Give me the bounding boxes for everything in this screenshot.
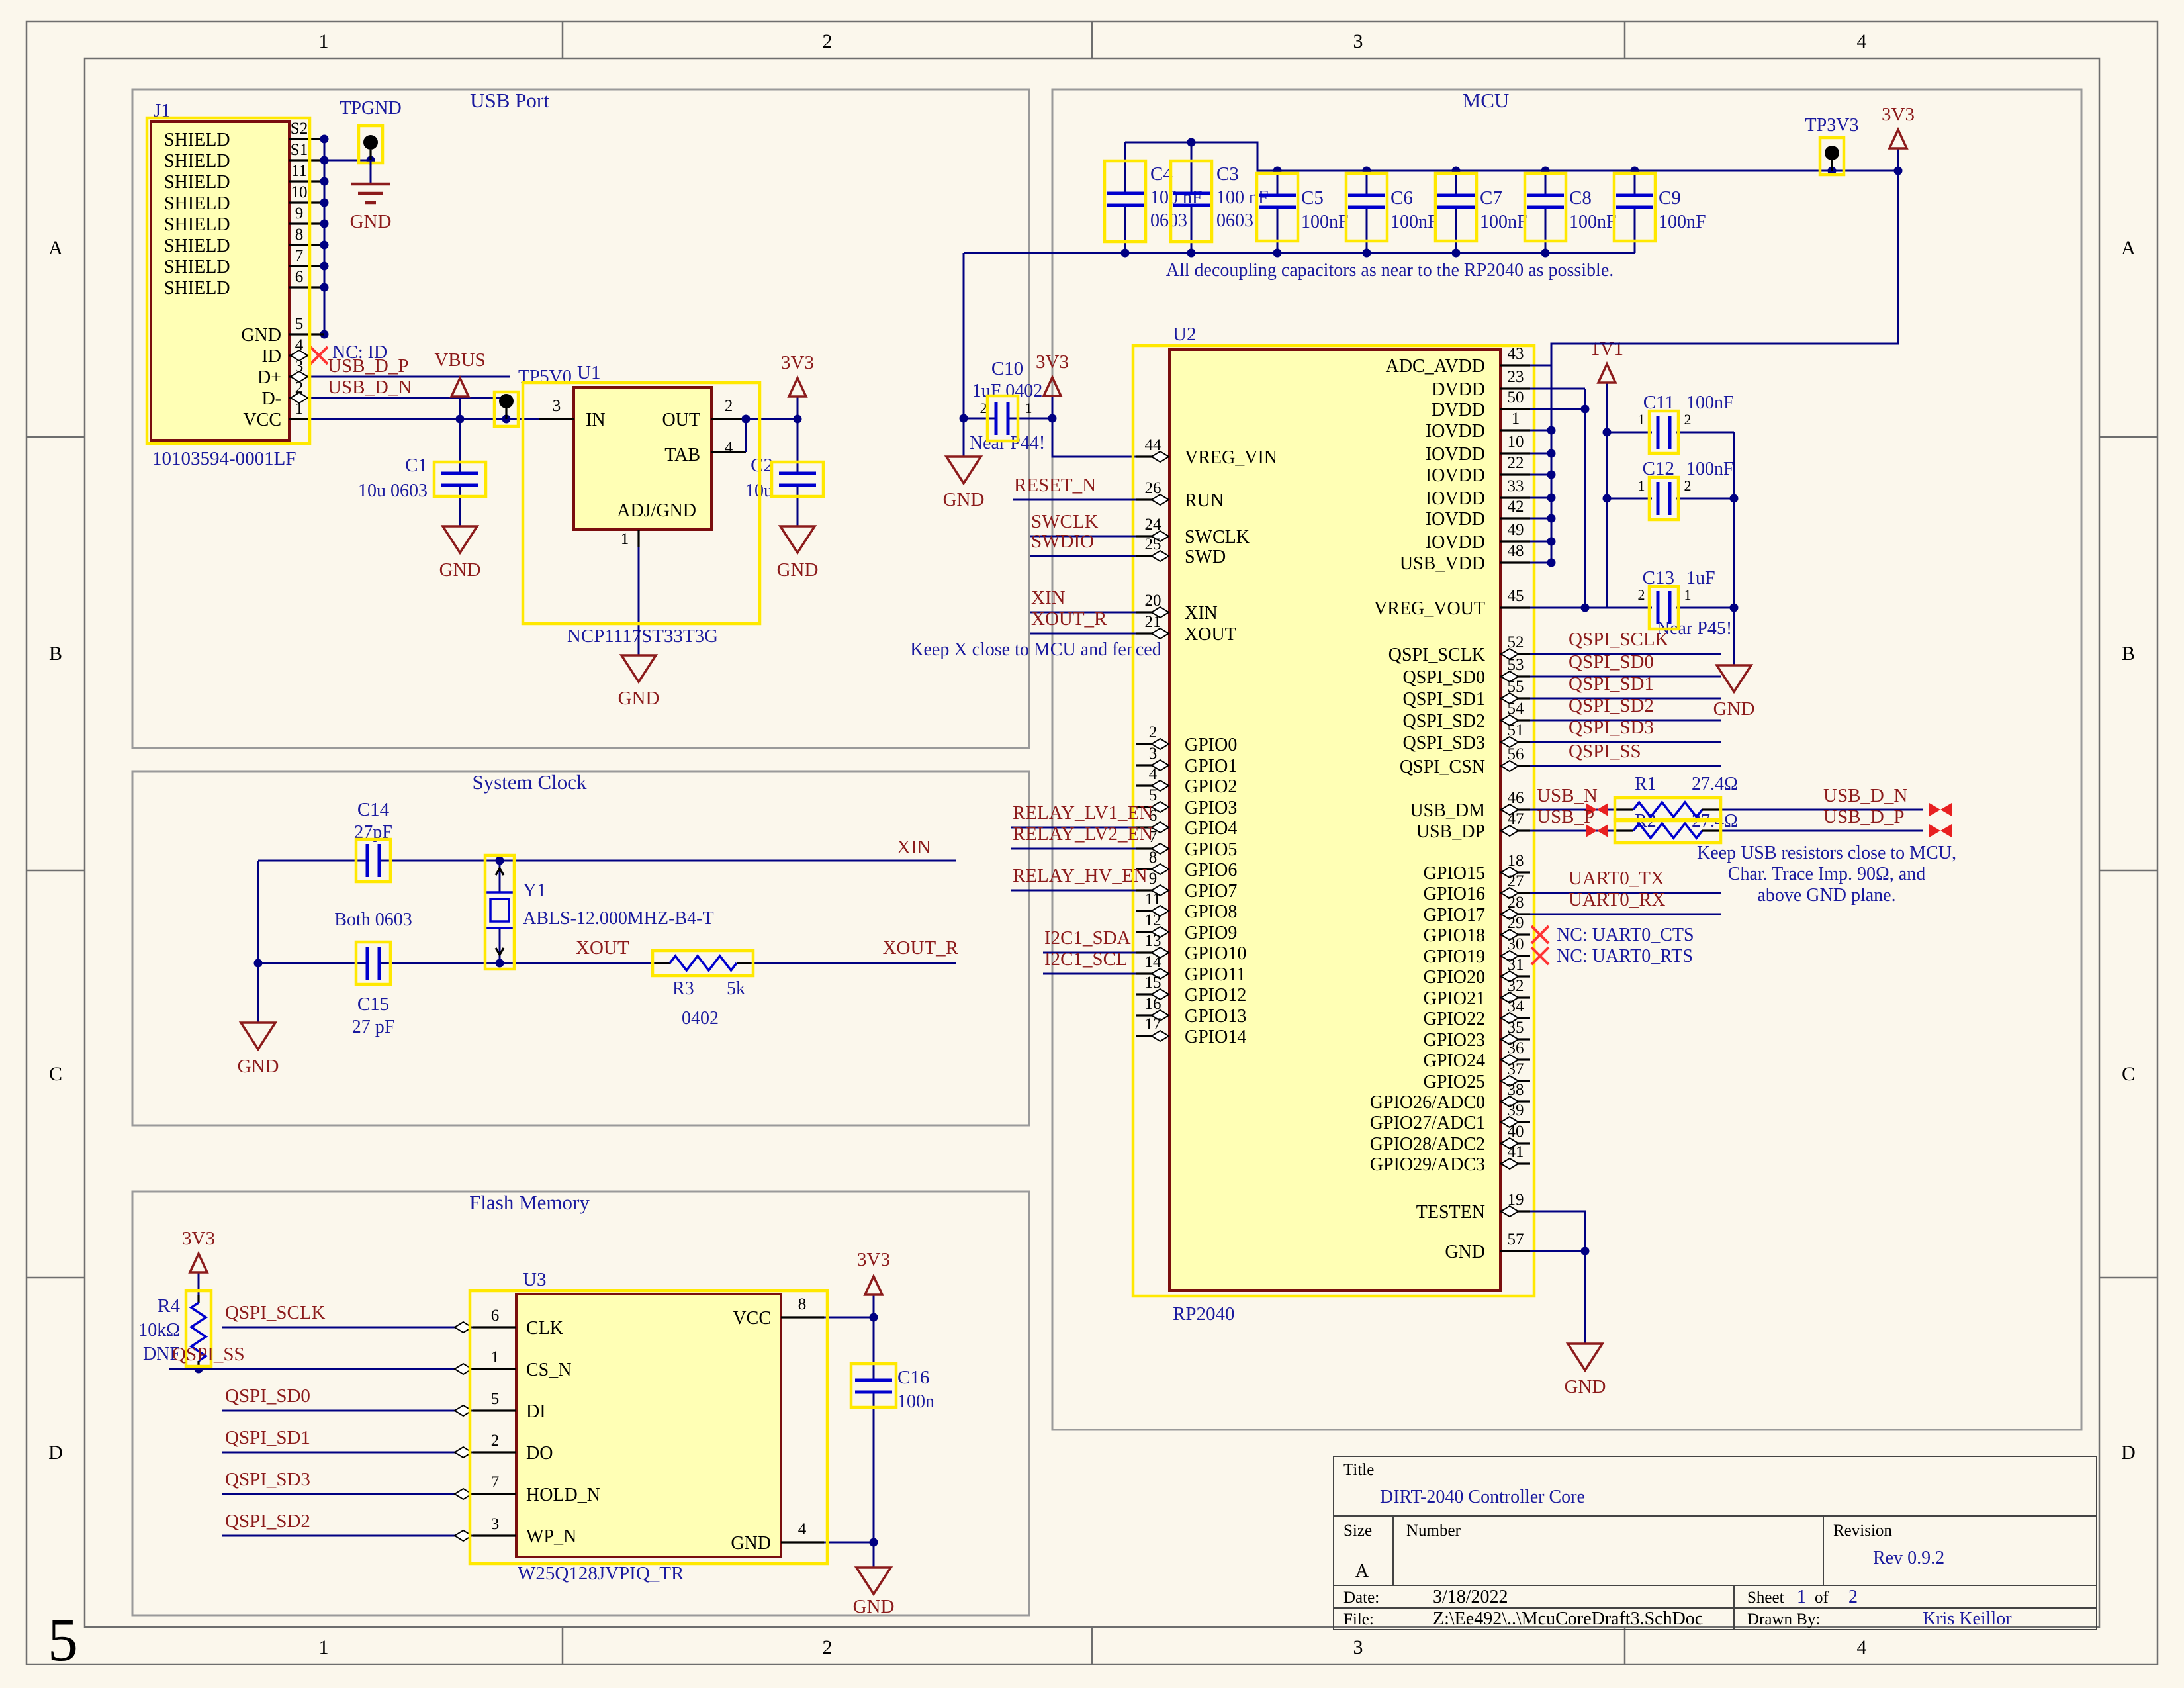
u3-net-label: QSPI_SD2 xyxy=(225,1511,310,1532)
net-label-usb-d-p: USB_D_P xyxy=(328,355,409,377)
u2-pin-name: GPIO6 xyxy=(1185,860,1237,880)
decap-value: 100nF xyxy=(1569,212,1617,232)
j1-pin-name: GND xyxy=(241,325,281,346)
decoupling-note: All decoupling capacitors as near to the… xyxy=(1166,260,1614,281)
u2-pin-name: GPIO28/ADC2 xyxy=(1370,1134,1485,1154)
u2-pin-name: GPIO22 xyxy=(1424,1009,1485,1029)
c12-value: 100nF xyxy=(1686,459,1734,479)
u2-pin-name: GPIO4 xyxy=(1185,818,1237,839)
number-label: Number xyxy=(1406,1522,1461,1540)
u2-pin-name: TESTEN xyxy=(1416,1202,1485,1223)
usb-note-line-3: above GND plane. xyxy=(1757,885,1895,906)
c1-gnd-label: GND xyxy=(439,559,481,581)
file-label: File: xyxy=(1343,1611,1374,1628)
nc-label: NC: UART0_RTS xyxy=(1557,946,1693,966)
u2-pin-name: QSPI_SD1 xyxy=(1403,689,1485,710)
u2-net-label: QSPI_SCLK xyxy=(1569,629,1669,650)
tpgnd-test-point[interactable] xyxy=(363,135,378,150)
u2-pin-name: QSPI_SCLK xyxy=(1388,645,1485,665)
u2-pin-name: GPIO21 xyxy=(1424,988,1485,1009)
c10-near-p44-note: Near P44! xyxy=(970,433,1045,453)
j1-pin-number: 11 xyxy=(291,162,307,180)
c15-value: 27 pF xyxy=(352,1017,395,1037)
u2-net-label: QSPI_SD1 xyxy=(1569,673,1654,694)
mcu-gnd-label: GND xyxy=(1565,1376,1606,1397)
c11-pin2: 2 xyxy=(1684,411,1692,428)
u2-pin-name: XOUT xyxy=(1185,624,1236,645)
u1-pin-name-tab: TAB xyxy=(664,445,700,465)
u1-pin-number-1: 1 xyxy=(621,530,629,548)
zone-column-label: 3 xyxy=(1353,1636,1363,1658)
u2-net-label: RELAY_LV1_EN xyxy=(1013,802,1153,823)
u3-pin-number: 6 xyxy=(491,1307,500,1325)
u2-pin-name: VREG_VOUT xyxy=(1374,598,1485,619)
section-title-mcu: MCU xyxy=(1463,89,1510,112)
u3-pin-number: 2 xyxy=(491,1432,500,1450)
j1-part-number: 10103594-0001LF xyxy=(152,448,296,469)
u2-net-label: I2C1_SDA xyxy=(1044,927,1131,949)
u3-pin-name: WP_N xyxy=(526,1526,576,1547)
u1-pin-name-out: OUT xyxy=(662,410,700,430)
decap-refdes: C8 xyxy=(1569,187,1592,209)
u2-pin-name: GPIO12 xyxy=(1185,985,1246,1006)
j1-pin-number: S2 xyxy=(291,120,308,138)
r4-refdes: R4 xyxy=(158,1295,180,1317)
u2-pin-number: 45 xyxy=(1508,587,1524,605)
c15-refdes: C15 xyxy=(357,994,389,1015)
u2-net-label: USB_D_N xyxy=(1823,785,1907,806)
u2-pin-name: IOVDD xyxy=(1426,444,1485,465)
c10-value: 1uF 0402 xyxy=(972,381,1043,401)
c13-value: 1uF xyxy=(1686,568,1715,588)
u2-pin-name: GPIO19 xyxy=(1424,947,1485,967)
u3-pin-number: 7 xyxy=(491,1474,500,1491)
u2-pin-name: XIN xyxy=(1185,603,1218,624)
u2-pin-number: 33 xyxy=(1508,477,1524,495)
u2-net-label: QSPI_SD0 xyxy=(1569,651,1654,673)
sheet-of-label: of xyxy=(1815,1589,1829,1607)
j1-pin-number: 10 xyxy=(291,183,308,201)
decap-refdes: C7 xyxy=(1480,187,1502,209)
j1-pin-number: S1 xyxy=(291,141,308,159)
u2-pin-number: 2 xyxy=(1149,724,1158,741)
zone-row-label: D xyxy=(48,1442,63,1464)
u2-pin-number: 3 xyxy=(1149,745,1158,763)
u2-pin-name: GPIO15 xyxy=(1424,863,1485,884)
u2-part-number: RP2040 xyxy=(1173,1303,1234,1325)
nc-label: NC: UART0_CTS xyxy=(1557,925,1694,945)
u2-refdes: U2 xyxy=(1173,324,1196,345)
r4-3v3-power-label: 3V3 xyxy=(182,1228,215,1249)
u2-pin-name: GPIO13 xyxy=(1185,1006,1246,1027)
usb-3v3-power-label: 3V3 xyxy=(781,352,814,373)
section-title-usb-port: USB Port xyxy=(470,89,549,112)
u1-refdes: U1 xyxy=(577,362,600,383)
tp3v3-test-point[interactable] xyxy=(1825,146,1839,160)
junction-dot xyxy=(496,857,504,865)
zone-row-label: A xyxy=(2121,237,2136,259)
y1-refdes: Y1 xyxy=(523,880,546,901)
u2-pin-name: GPIO27/ADC1 xyxy=(1370,1113,1485,1133)
decap-refdes: C9 xyxy=(1659,187,1681,209)
u2-pin-name: ADC_AVDD xyxy=(1386,356,1485,377)
usb-note-line-2: Char. Trace Imp. 90Ω, and xyxy=(1728,864,1925,884)
tpgnd-label: TPGND xyxy=(340,98,401,118)
r1-value: 27.4Ω xyxy=(1692,774,1738,794)
flash-gnd-label: GND xyxy=(853,1596,895,1617)
size-value: A xyxy=(1355,1561,1369,1581)
u2-pin-name: IOVDD xyxy=(1426,421,1485,442)
u2-pin-name: QSPI_SD3 xyxy=(1403,733,1485,753)
u2-pin-name: VREG_VIN xyxy=(1185,447,1277,468)
u1-pin-name-in: IN xyxy=(586,410,606,430)
file-value: Z:\Ee492\..\McuCoreDraft3.SchDoc xyxy=(1433,1609,1703,1629)
c2-refdes: C2 xyxy=(751,455,773,476)
u3-pin-name: HOLD_N xyxy=(526,1485,600,1505)
junction-dot xyxy=(1603,428,1612,437)
r1-refdes: R1 xyxy=(1635,774,1657,794)
zone-row-label: B xyxy=(2122,643,2135,665)
u2-pin-name: GPIO16 xyxy=(1424,884,1485,904)
c11-value: 100nF xyxy=(1686,393,1734,413)
u2-pin-name: GPIO24 xyxy=(1424,1051,1485,1071)
j1-pin-name: VCC xyxy=(243,410,281,430)
u2-pin-number: 50 xyxy=(1508,389,1524,406)
u2-pin-name: GPIO20 xyxy=(1424,967,1485,988)
u2-pin-name: GPIO5 xyxy=(1185,839,1237,860)
clock-gnd-label: GND xyxy=(238,1056,279,1077)
zone-column-label: 2 xyxy=(823,30,833,52)
u2-pin-number: 1 xyxy=(1512,410,1520,428)
page-number: 5 xyxy=(48,1606,78,1673)
zone-column-label: 1 xyxy=(319,30,329,52)
j1-pin-name-shield: SHIELD xyxy=(164,130,230,150)
decap-value: 100nF xyxy=(1659,212,1706,232)
net-label-usb-d-n: USB_D_N xyxy=(328,377,412,398)
section-title-flash-memory: Flash Memory xyxy=(469,1191,590,1214)
u2-pin-name: SWD xyxy=(1185,547,1226,567)
u1-pin-number-3: 3 xyxy=(553,397,561,415)
u2-pin-number: 49 xyxy=(1508,521,1524,539)
u2-pin-name: QSPI_CSN xyxy=(1400,757,1485,777)
u2-pin-name: GPIO1 xyxy=(1185,756,1237,776)
r4-value: 10kΩ xyxy=(138,1320,180,1340)
revision-value: Rev 0.9.2 xyxy=(1873,1548,1944,1568)
u2-net-label: UART0_RX xyxy=(1569,889,1666,910)
r3-size: 0402 xyxy=(682,1008,719,1029)
u2-net-label: XIN xyxy=(1031,587,1066,608)
u2-pin-number: 9 xyxy=(1149,870,1158,888)
u2-pin-number: 12 xyxy=(1145,912,1161,929)
u2-net-label: SWDIO xyxy=(1031,531,1094,552)
c12-pin2: 2 xyxy=(1684,477,1692,494)
c13-pin1: 1 xyxy=(1684,586,1692,603)
zone-column-label: 4 xyxy=(1857,30,1867,52)
junction-dot xyxy=(1730,494,1739,503)
1v1-power-label: 1V1 xyxy=(1590,338,1623,359)
u1-pin-number-2: 2 xyxy=(725,397,733,415)
u2-pin-name: GPIO9 xyxy=(1185,923,1237,943)
y1-part-number: ABLS-12.000MHZ-B4-T xyxy=(523,908,714,929)
u2-pin-number: 21 xyxy=(1145,613,1161,631)
sheet-total: 2 xyxy=(1848,1587,1858,1607)
u2-pin-name: USB_DM xyxy=(1410,800,1485,821)
j1-pin-name-shield: SHIELD xyxy=(164,214,230,235)
decap-refdes: C5 xyxy=(1301,187,1324,209)
junction-dot xyxy=(1603,494,1612,503)
j1-pin-name-shield: SHIELD xyxy=(164,172,230,193)
u2-pin-number: 26 xyxy=(1145,479,1161,497)
clock-both-0603-note: Both 0603 xyxy=(334,910,412,930)
u2-net-label: I2C1_SCL xyxy=(1044,949,1128,970)
u2-pin-name: QSPI_SD2 xyxy=(1403,711,1485,731)
j1-pin-name-shield: SHIELD xyxy=(164,151,230,171)
c10-gnd-label: GND xyxy=(943,489,985,510)
date-label: Date: xyxy=(1343,1589,1379,1607)
title-label: Title xyxy=(1343,1461,1374,1479)
j1-pin-name-shield: SHIELD xyxy=(164,236,230,256)
u2-pin-number: 4 xyxy=(1149,765,1158,783)
xtal-placement-note: Keep X close to MCU and fenced xyxy=(910,639,1161,660)
zone-row-label: C xyxy=(49,1063,62,1085)
u3-pin-number: 1 xyxy=(491,1348,500,1366)
tpgnd-gnd-label: GND xyxy=(350,211,392,232)
u3-refdes: U3 xyxy=(523,1269,546,1290)
u2-pin-name: GPIO8 xyxy=(1185,902,1237,922)
c2-gnd-label: GND xyxy=(777,559,819,581)
u3-net-label: QSPI_SD1 xyxy=(225,1427,310,1448)
u2-pin-name: GPIO14 xyxy=(1185,1027,1246,1047)
u3-net-label: QSPI_SD3 xyxy=(225,1469,310,1490)
j1-pin-number: 7 xyxy=(295,247,304,265)
section-title-system-clock: System Clock xyxy=(472,771,587,794)
net-label-xout-r: XOUT_R xyxy=(883,937,959,959)
r3-refdes: R3 xyxy=(672,978,694,999)
u3-pin-name: CS_N xyxy=(526,1360,571,1380)
u2-pin-number: 25 xyxy=(1145,536,1161,553)
title-value: DIRT-2040 Controller Core xyxy=(1380,1487,1585,1507)
u2-net-label: USB_D_P xyxy=(1823,806,1905,827)
j1-pin-number: 6 xyxy=(295,268,304,286)
u2-pin-number: 5 xyxy=(1149,786,1158,804)
u2-pin-number: 23 xyxy=(1508,368,1524,386)
u2-pin-number: 42 xyxy=(1508,498,1524,516)
u3-net-label: QSPI_SD0 xyxy=(225,1385,310,1407)
u3-pin-number-4: 4 xyxy=(798,1521,807,1538)
u3-net-label: QSPI_SCLK xyxy=(225,1302,326,1323)
c11-pin1: 1 xyxy=(1638,411,1645,428)
j1-pin-number: 9 xyxy=(295,205,304,222)
u2-pin-number: 8 xyxy=(1149,849,1158,867)
u2-pin-number: 43 xyxy=(1508,345,1524,363)
u2-pin-name: QSPI_SD0 xyxy=(1403,667,1485,688)
c1-value: 10u 0603 xyxy=(358,481,428,501)
zone-row-label: B xyxy=(49,643,62,665)
u2-net-label: RELAY_LV2_EN xyxy=(1013,823,1153,845)
u2-pin-number: 16 xyxy=(1145,995,1161,1013)
zone-row-label: A xyxy=(48,237,63,259)
u2-pin-name: GPIO2 xyxy=(1185,776,1237,797)
u2-pin-name: GND xyxy=(1445,1242,1485,1262)
u2-pin-name: IOVDD xyxy=(1426,489,1485,509)
u2-net-label: USB_N xyxy=(1537,785,1598,806)
j1-pin-name-shield: SHIELD xyxy=(164,257,230,277)
u2-pin-name: DVDD xyxy=(1432,379,1485,400)
u3-pin-name: DI xyxy=(526,1401,546,1422)
u2-pin-name: IOVDD xyxy=(1426,532,1485,553)
u3-pin-name-gnd: GND xyxy=(731,1533,771,1554)
u1-pin-name-adj: ADJ/GND xyxy=(617,500,696,521)
u1-pin-number-4: 4 xyxy=(725,439,733,457)
u2-net-label: QSPI_SD3 xyxy=(1569,717,1654,738)
zone-column-label: 4 xyxy=(1857,1636,1867,1658)
u2-pin-number: 22 xyxy=(1508,454,1524,472)
u2-pin-number: 57 xyxy=(1508,1231,1524,1248)
decap-refdes: C3 xyxy=(1216,164,1239,185)
u3-pin-name: DO xyxy=(526,1443,553,1464)
decap-size: 0603 xyxy=(1150,211,1187,231)
u2-pin-number: 48 xyxy=(1508,542,1524,560)
u2-pin-name: GPIO10 xyxy=(1185,943,1246,964)
j1-pin-name-shield: SHIELD xyxy=(164,278,230,299)
zone-column-label: 3 xyxy=(1353,30,1363,52)
u2-pin-name: IOVDD xyxy=(1426,465,1485,486)
u2-pin-name: GPIO17 xyxy=(1424,905,1485,925)
zone-column-label: 2 xyxy=(823,1636,833,1658)
u2-net-label: SWCLK xyxy=(1031,511,1099,532)
u2-net-label: RESET_N xyxy=(1014,475,1096,496)
u2-pin-number: 17 xyxy=(1145,1015,1161,1033)
zone-row-label: D xyxy=(2121,1442,2136,1464)
u2-pin-name: GPIO25 xyxy=(1424,1072,1485,1092)
zone-row-label: C xyxy=(2122,1063,2135,1085)
u2-net-label: UART0_TX xyxy=(1569,868,1664,889)
size-label: Size xyxy=(1343,1522,1372,1540)
drawn-by-value: Kris Keillor xyxy=(1923,1609,2012,1629)
decap-value: 100 nF xyxy=(1216,187,1269,208)
core-rail-gnd-label: GND xyxy=(1713,698,1755,720)
j1-pin-number: 5 xyxy=(295,315,304,333)
mcu-3v3-top-power-label: 3V3 xyxy=(1882,104,1915,125)
r3-value: 5k xyxy=(727,978,745,999)
schematic-sheet: 5 USB Port System Clock Flash Memory MCU… xyxy=(0,0,2184,1688)
u2-pin-name: GPIO23 xyxy=(1424,1030,1485,1051)
u2-net-label: QSPI_SS xyxy=(1569,741,1641,762)
decap-value: 100nF xyxy=(1301,212,1349,232)
c12-pin1: 1 xyxy=(1638,477,1645,494)
u2-pin-name: DVDD xyxy=(1432,400,1485,420)
u2-pin-name: GPIO7 xyxy=(1185,881,1237,902)
u2-pin-name: USB_VDD xyxy=(1400,553,1485,574)
u2-pin-name: GPIO0 xyxy=(1185,735,1237,755)
u2-pin-number: 10 xyxy=(1508,433,1524,451)
u2-pin-number: 15 xyxy=(1145,974,1161,992)
u2-pin-name: GPIO3 xyxy=(1185,798,1237,818)
u2-pin-name: GPIO29/ADC3 xyxy=(1370,1154,1485,1175)
usb-note-line-1: Keep USB resistors close to MCU, xyxy=(1697,843,1956,863)
u3-pin-name: CLK xyxy=(526,1318,563,1338)
j1-pin-name: D- xyxy=(261,389,281,409)
flash-3v3-power-label: 3V3 xyxy=(857,1249,890,1270)
c16-value: 100n xyxy=(897,1391,934,1412)
u2-net-label: XOUT_R xyxy=(1031,608,1107,630)
u3-pin-name-vcc: VCC xyxy=(733,1308,771,1329)
c13-pin2: 2 xyxy=(1638,586,1645,603)
drawn-by-label: Drawn By: xyxy=(1747,1611,1820,1628)
u2-pin-name: IOVDD xyxy=(1426,509,1485,530)
sheet-label: Sheet xyxy=(1747,1589,1784,1607)
tp3v3-label: TP3V3 xyxy=(1805,115,1859,136)
j1-pin-number: 8 xyxy=(295,226,304,244)
decap-value: 100nF xyxy=(1480,212,1527,232)
net-label-xin: XIN xyxy=(897,837,931,858)
u2-pin-name: USB_DP xyxy=(1416,821,1485,842)
j1-pin-name: ID xyxy=(261,346,281,367)
u2-pin-name: RUN xyxy=(1185,491,1224,511)
u3-part-number: W25Q128JVPIQ_TR xyxy=(518,1563,684,1584)
u2-pin-number: 20 xyxy=(1145,592,1161,610)
u3-pin-number-8: 8 xyxy=(798,1295,807,1313)
junction-dot xyxy=(254,959,263,968)
junction-dot xyxy=(496,959,504,968)
date-value: 3/18/2022 xyxy=(1433,1587,1508,1607)
junction-dot xyxy=(1581,604,1590,612)
u2-pin-name: GPIO26/ADC0 xyxy=(1370,1092,1485,1113)
u1-part-number: NCP1117ST33T3G xyxy=(567,626,718,647)
u2-pin-number: 13 xyxy=(1145,932,1161,950)
u2-net-label: RELAY_HV_EN xyxy=(1013,865,1148,886)
j1-pin-name-shield: SHIELD xyxy=(164,193,230,214)
vreg-vin-3v3-label: 3V3 xyxy=(1036,352,1069,373)
u2-pin-name: SWCLK xyxy=(1185,527,1250,547)
zone-column-label: 1 xyxy=(319,1636,329,1658)
c10-pin1: 1 xyxy=(1025,400,1032,416)
c10-refdes: C10 xyxy=(991,358,1023,379)
u2-pin-name: GPIO18 xyxy=(1424,925,1485,946)
vbus-power-label: VBUS xyxy=(434,350,485,371)
revision-label: Revision xyxy=(1833,1522,1892,1540)
u2-net-label: QSPI_SD2 xyxy=(1569,695,1654,716)
u3-net-label: QSPI_SS xyxy=(172,1344,245,1365)
c14-refdes: C14 xyxy=(357,799,390,820)
tp5v0-test-point[interactable] xyxy=(499,394,514,408)
u3-pin-number: 5 xyxy=(491,1390,500,1408)
net-label-xout: XOUT xyxy=(576,937,629,959)
junction-dot xyxy=(1730,604,1739,612)
c16-refdes: C16 xyxy=(897,1367,929,1388)
decap-size: 0603 xyxy=(1216,211,1253,231)
u3-pin-number: 3 xyxy=(491,1515,500,1533)
u2-net-label: USB_P xyxy=(1537,806,1594,827)
u2-pin-number: 11 xyxy=(1145,890,1161,908)
j1-pin-name: D+ xyxy=(257,367,281,388)
u1-gnd-label: GND xyxy=(618,688,660,709)
u2-pin-name: GPIO11 xyxy=(1185,964,1246,985)
sheet-number: 1 xyxy=(1797,1587,1806,1607)
decap-refdes: C6 xyxy=(1390,187,1413,209)
c1-refdes: C1 xyxy=(405,455,428,476)
decap-value: 100nF xyxy=(1390,212,1438,232)
tp5v0-label: TP5V0 xyxy=(518,367,572,387)
